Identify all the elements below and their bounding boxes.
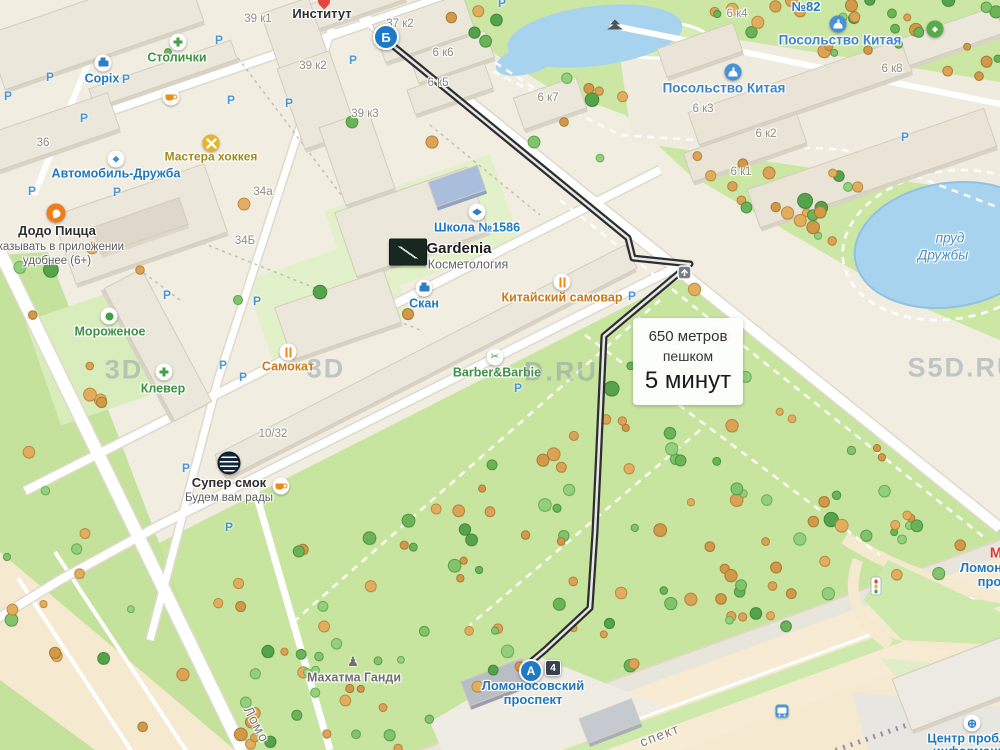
map-canvas[interactable]: [0, 0, 1000, 750]
route-distance: 650 метров: [649, 328, 728, 345]
map-view[interactable]: ИнститутСтоличкиCopixМастера хоккеяАвтом…: [0, 0, 1000, 750]
route-point-b-badge[interactable]: Б: [373, 24, 399, 50]
route-point-a-badge[interactable]: А: [519, 659, 543, 683]
metro-exit-badge[interactable]: 4: [545, 660, 561, 676]
route-mode: пешком: [663, 348, 713, 364]
route-info-bubble[interactable]: 650 метров пешком 5 минут: [633, 318, 743, 405]
route-duration: 5 минут: [645, 367, 731, 395]
